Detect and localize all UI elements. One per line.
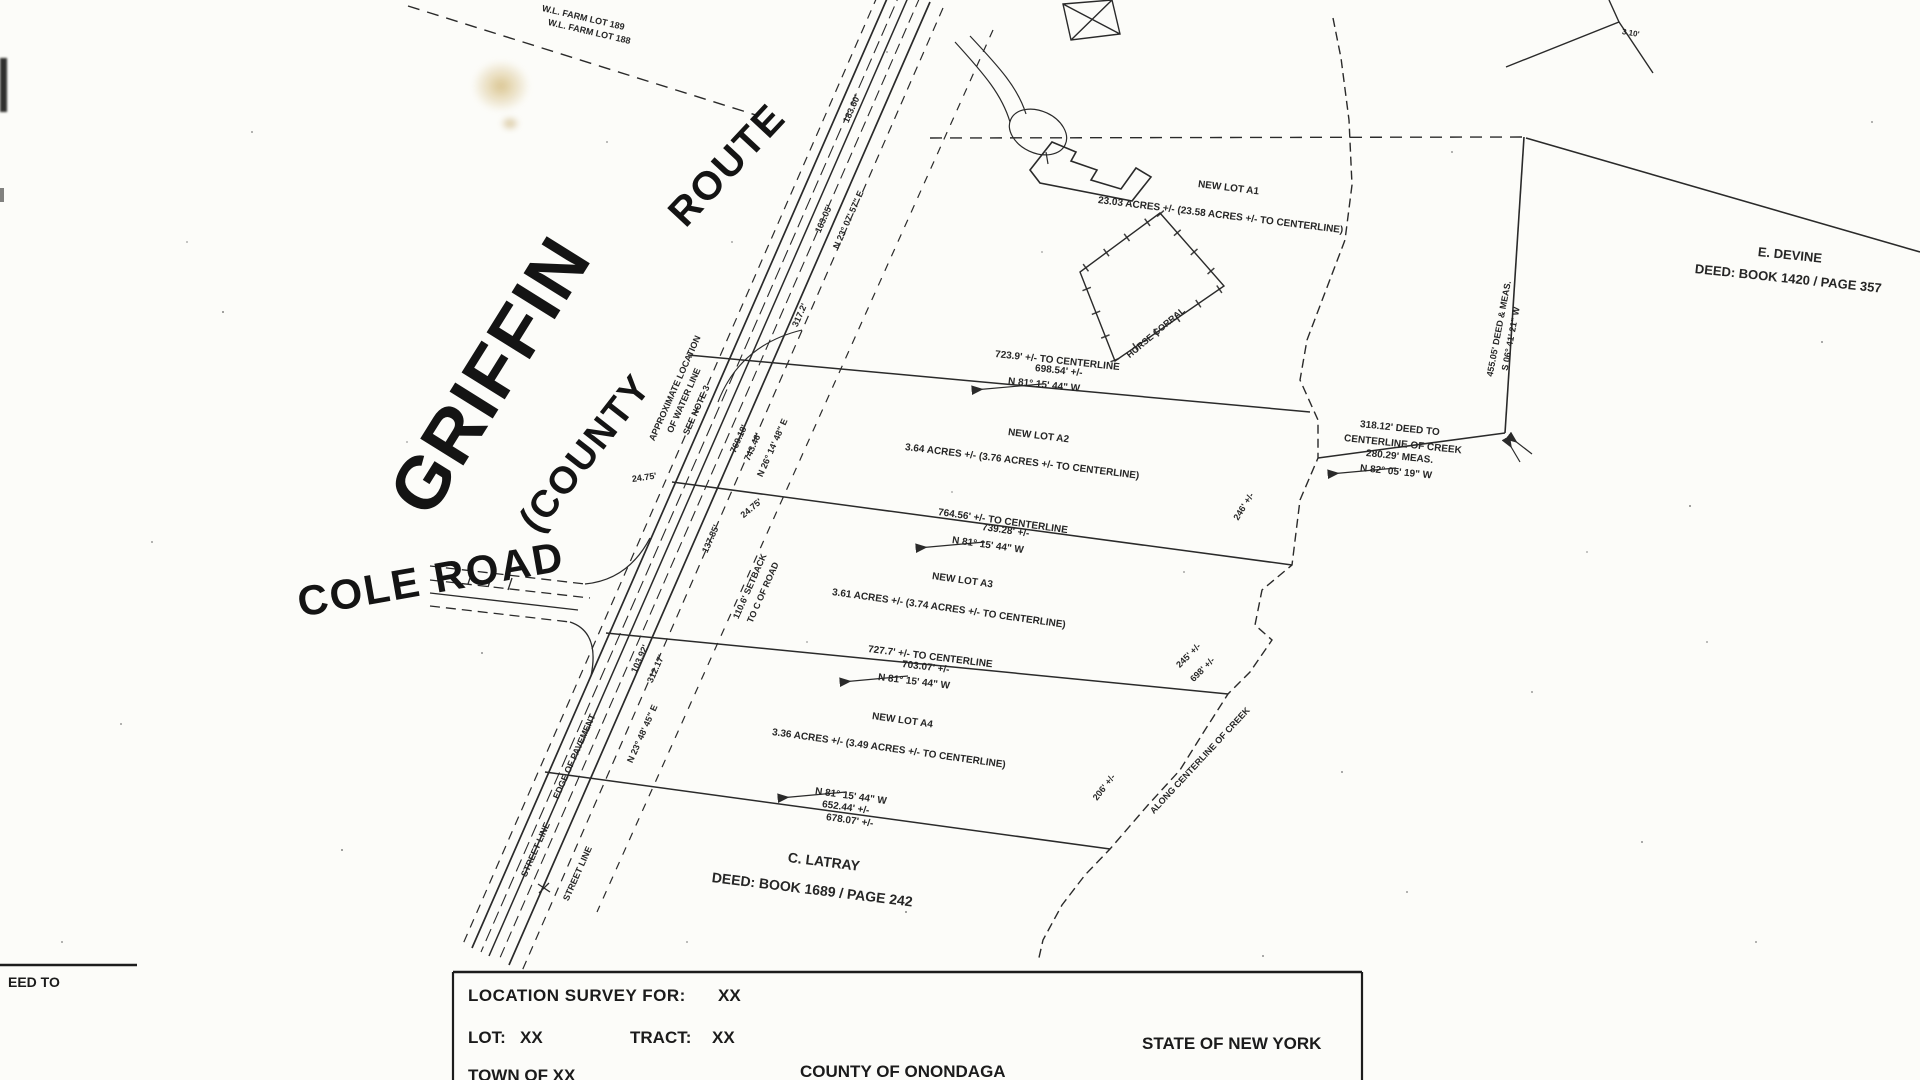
scan-stain [472, 60, 530, 112]
lot-value: XX [520, 1028, 543, 1048]
town-label: TOWN OF XX [468, 1066, 575, 1080]
deed-to-label: EED TO [8, 974, 60, 990]
title-block-rules [0, 965, 1362, 1080]
corner-ticks [1507, 437, 1532, 462]
scan-speckles [0, 0, 2, 2]
setback-line [597, 30, 993, 912]
tract-label: TRACT: [630, 1028, 691, 1048]
barn-outline [1063, 0, 1120, 40]
creek-centerline [1038, 18, 1352, 962]
driveway [955, 36, 1074, 164]
devine-north-boundary [1526, 138, 1920, 252]
location-survey-value: XX [718, 986, 741, 1006]
scan-stain-small [500, 116, 520, 131]
scan-edge-mark [0, 58, 7, 112]
survey-sheet: GRIFFIN (COUNTY ROUTE COLE ROAD W.L. FAR… [0, 0, 1920, 1080]
dimension-arrows [780, 384, 1396, 798]
tract-value: XX [712, 1028, 735, 1048]
location-survey-label: LOCATION SURVEY FOR: [468, 986, 686, 1006]
scan-edge-mark-2 [0, 188, 4, 202]
state-label: STATE OF NEW YORK [1142, 1034, 1321, 1054]
county-label: COUNTY OF ONONDAGA [800, 1062, 1006, 1080]
lot-label: LOT: [468, 1028, 506, 1048]
house-outline [1030, 142, 1151, 201]
